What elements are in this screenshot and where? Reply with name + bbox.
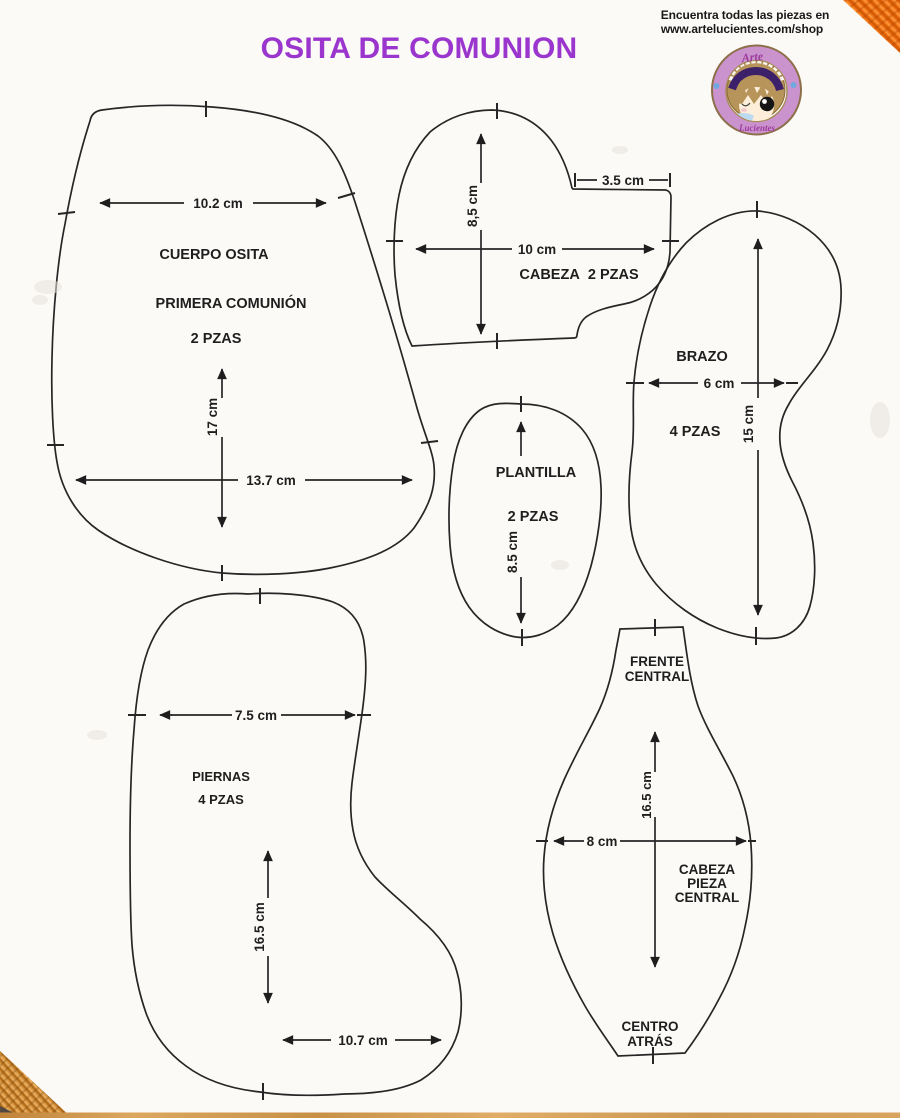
svg-text:13.7 cm: 13.7 cm	[246, 473, 296, 488]
svg-text:17 cm: 17 cm	[205, 398, 220, 436]
svg-text:www.artelucientes.com/shop: www.artelucientes.com/shop	[660, 22, 823, 36]
svg-text:OSITA DE COMUNION: OSITA DE COMUNION	[261, 32, 578, 65]
svg-text:PRIMERA COMUNIÓN: PRIMERA COMUNIÓN	[156, 294, 307, 312]
svg-text:CUERPO OSITA: CUERPO OSITA	[159, 247, 269, 263]
svg-text:ATRÁS: ATRÁS	[627, 1034, 673, 1049]
svg-text:10.7 cm: 10.7 cm	[338, 1033, 388, 1048]
svg-text:PLANTILLA: PLANTILLA	[496, 465, 577, 481]
svg-text:4 PZAS: 4 PZAS	[670, 424, 721, 440]
svg-text:4 PZAS: 4 PZAS	[198, 792, 244, 807]
svg-text:6 cm: 6 cm	[704, 376, 735, 391]
svg-text:10.2 cm: 10.2 cm	[193, 196, 243, 211]
svg-text:BRAZO: BRAZO	[676, 349, 728, 365]
svg-text:CABEZA 2 PZAS: CABEZA 2 PZAS	[519, 267, 639, 283]
svg-text:FRENTE: FRENTE	[630, 654, 684, 669]
svg-text:8.5 cm: 8.5 cm	[505, 531, 520, 573]
svg-text:16.5 cm: 16.5 cm	[252, 902, 267, 952]
svg-text:10 cm: 10 cm	[518, 242, 556, 257]
svg-text:8,5 cm: 8,5 cm	[465, 185, 480, 227]
svg-text:7.5 cm: 7.5 cm	[235, 708, 277, 723]
svg-text:Encuentra todas las piezas en: Encuentra todas las piezas en	[661, 8, 830, 22]
svg-text:CENTRAL: CENTRAL	[625, 669, 690, 684]
svg-text:PIERNAS: PIERNAS	[192, 769, 250, 784]
svg-text:3.5 cm: 3.5 cm	[602, 173, 644, 188]
svg-text:2 PZAS: 2 PZAS	[191, 331, 242, 347]
svg-text:16.5 cm: 16.5 cm	[639, 771, 654, 819]
svg-text:CABEZA: CABEZA	[679, 862, 735, 877]
svg-text:CENTRO: CENTRO	[622, 1019, 679, 1034]
svg-text:2 PZAS: 2 PZAS	[508, 509, 559, 525]
svg-text:8 cm: 8 cm	[587, 834, 618, 849]
svg-text:CENTRAL: CENTRAL	[675, 890, 740, 905]
svg-text:Arte: Arte	[740, 49, 764, 65]
svg-text:Lucientes: Lucientes	[738, 123, 775, 133]
svg-text:15 cm: 15 cm	[741, 405, 756, 443]
svg-text:PIEZA: PIEZA	[687, 876, 727, 891]
